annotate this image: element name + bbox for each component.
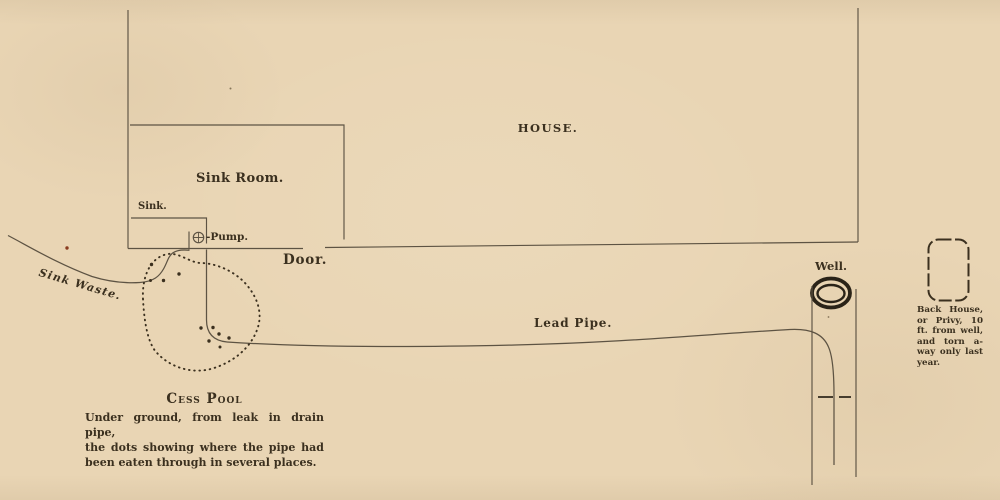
cess-pool-caption-line: been eaten through in several places. <box>85 455 324 470</box>
well-label: Well. <box>810 259 852 273</box>
house-front-wall-right <box>325 242 858 248</box>
cess-pool-outline <box>143 254 260 371</box>
well-mouth-inner <box>818 285 845 302</box>
back-house-note-line: way only last <box>917 347 983 358</box>
paper-speck <box>230 88 232 90</box>
cess-pool-caption-line: Under ground, from leak in drain pipe, <box>85 410 324 440</box>
leak-dot <box>149 279 152 282</box>
back-house-note-line: Back House, <box>917 305 983 316</box>
back-house-note-line: ft. from well, <box>917 326 983 337</box>
cess-pool-title: Cess Pool <box>85 391 324 407</box>
leak-dot <box>177 272 180 275</box>
pump-icon <box>193 232 204 243</box>
sink-counter <box>131 218 207 244</box>
leak-dot <box>162 279 165 282</box>
leak-dot <box>199 326 202 329</box>
cess-pool-caption: Cess Pool Under ground, from leak in dra… <box>85 391 324 470</box>
sink-label: Sink. <box>138 201 167 212</box>
back-house-note: Back House, or Privy, 10 ft. from well, … <box>917 305 983 369</box>
sink-room-label: Sink Room. <box>196 171 280 186</box>
leak-dot <box>211 326 214 329</box>
leak-dot <box>150 263 153 266</box>
cess-pool-caption-line: the dots showing where the pipe had <box>85 440 324 455</box>
pump-label: -Pump. <box>206 231 248 243</box>
paper-speck <box>65 246 68 249</box>
leak-dot <box>207 339 210 342</box>
lead-pipe-label: Lead Pipe. <box>534 316 612 330</box>
house-label: HOUSE. <box>498 121 598 135</box>
back-house-note-line: and torn a- <box>917 337 983 348</box>
door-label: Door. <box>283 252 327 268</box>
paper-speck <box>828 316 830 318</box>
diagram-canvas: HOUSE. Sink Room. Sink. -Pump. Door. Sin… <box>0 0 1000 500</box>
leak-dot <box>227 336 230 339</box>
leak-dots <box>149 263 231 349</box>
sink-waste-line <box>8 236 190 283</box>
leak-dot <box>217 332 220 335</box>
back-house-note-line: or Privy, 10 <box>917 316 983 327</box>
back-house-note-line: year. <box>917 358 983 369</box>
back-house-outline <box>929 240 969 301</box>
leak-dot <box>219 346 222 349</box>
